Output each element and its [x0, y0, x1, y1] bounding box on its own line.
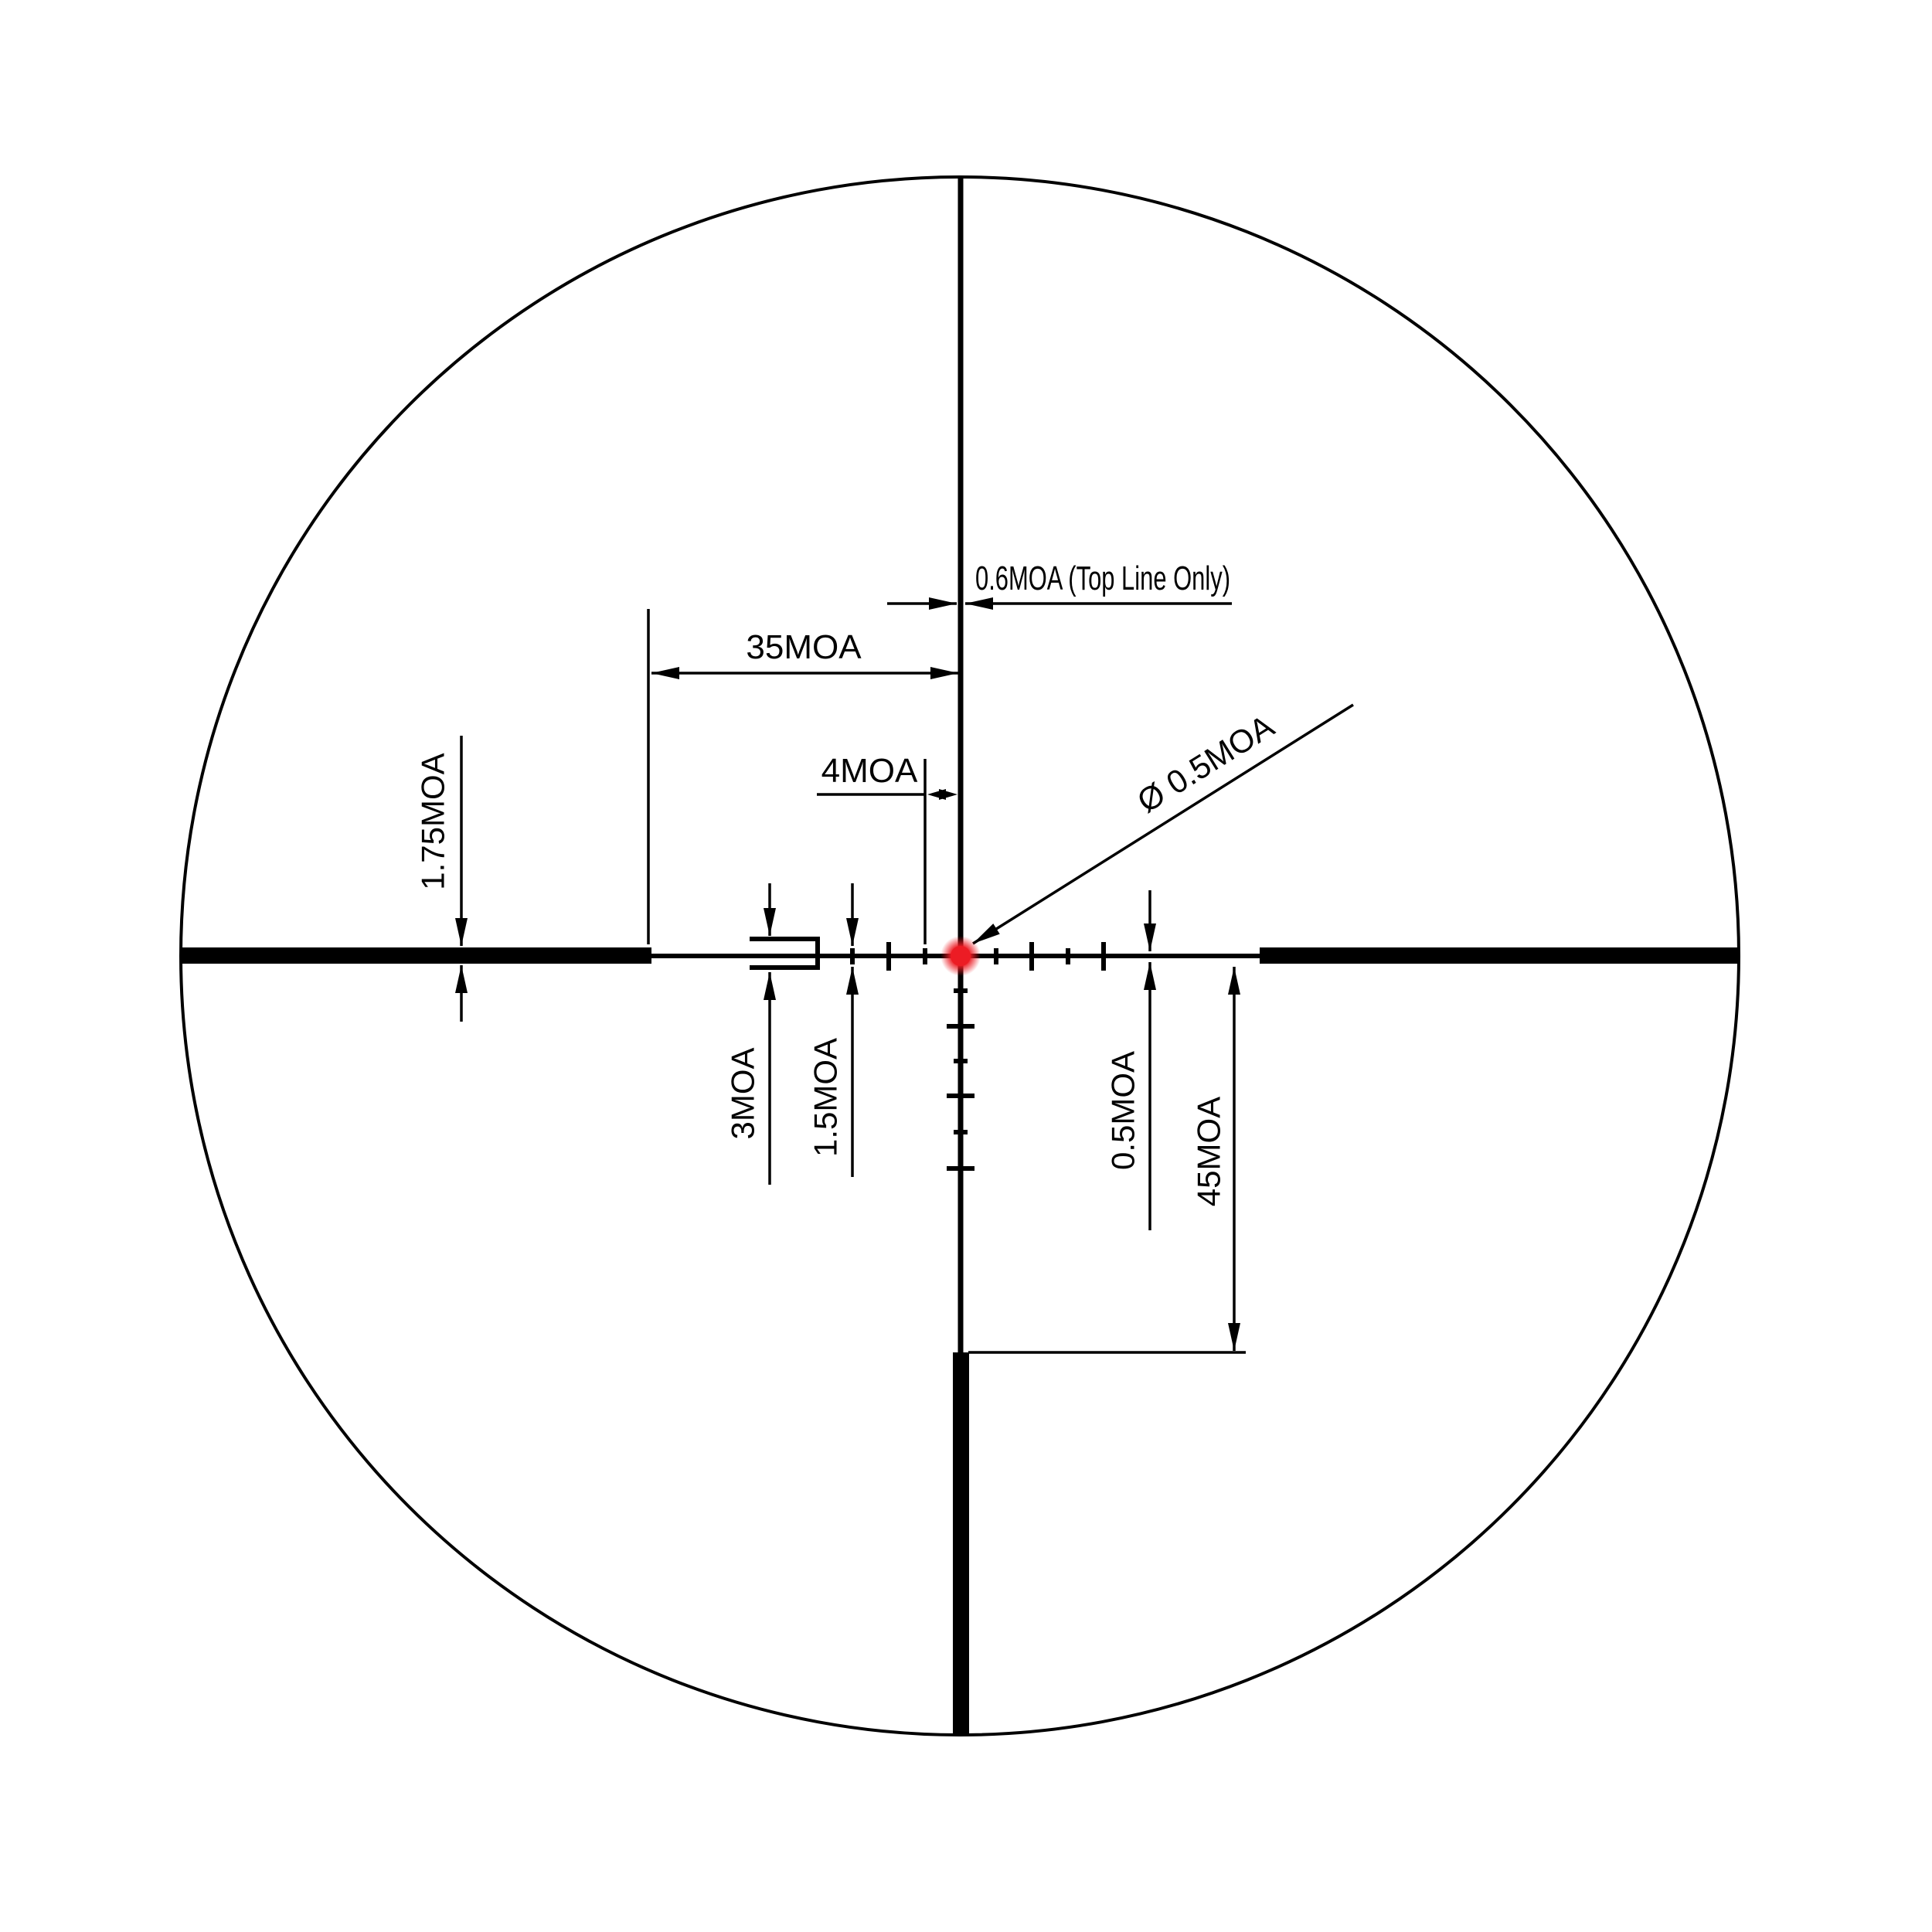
left-thick-bar	[182, 947, 651, 964]
reticle-diagram: 0.6MOA (Top Line Only) 35MOA 4MOA 1.75MO…	[0, 0, 1932, 1932]
reticle-diagram-canvas: 0.6MOA (Top Line Only) 35MOA 4MOA 1.75MO…	[0, 0, 1932, 1932]
label-bar-thickness: 1.75MOA	[415, 753, 451, 889]
label-bottom-post-distance: 45MOA	[1191, 1097, 1227, 1206]
dim-arrow-right	[939, 789, 957, 800]
dim-tick-height: 1.5MOA	[808, 883, 853, 1177]
label-bar-to-center: 35MOA	[746, 628, 862, 666]
dim-line-thickness: 0.5MOA	[1105, 890, 1151, 1230]
dim-center-dot-diameter: Ø 0.5MOA	[973, 705, 1353, 944]
leader-arrow	[973, 705, 1353, 944]
label-line-thickness: 0.5MOA	[1105, 1051, 1141, 1170]
bottom-thick-post	[953, 1352, 969, 1735]
fork-marker	[750, 937, 818, 970]
label-fork-height: 3MOA	[725, 1047, 761, 1139]
center-dot	[951, 946, 971, 966]
label-tick-spacing: 4MOA	[821, 752, 918, 790]
label-tick-height: 1.5MOA	[808, 1038, 844, 1157]
dim-tick-spacing: 4MOA	[817, 752, 957, 944]
dim-top-line-width: 0.6MOA (Top Line Only)	[887, 560, 1232, 604]
dim-bar-thickness: 1.75MOA	[415, 736, 462, 1022]
label-top-line-width: 0.6MOA (Top Line Only)	[975, 560, 1230, 597]
right-thick-bar	[1260, 947, 1739, 964]
dim-fork-height: 3MOA	[725, 883, 770, 1185]
